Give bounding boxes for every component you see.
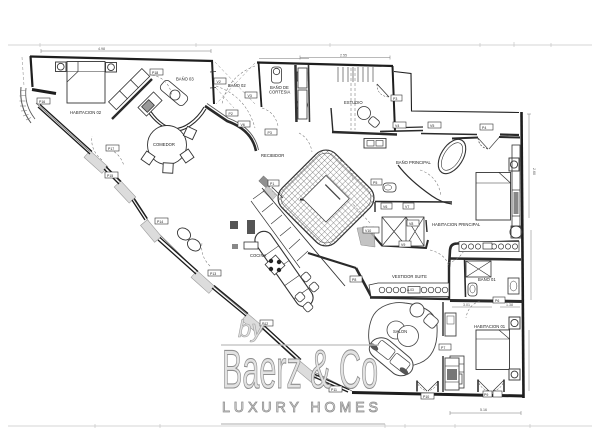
svg-text:5.16: 5.16 xyxy=(480,408,487,412)
svg-text:P9: P9 xyxy=(484,393,488,397)
svg-text:V6: V6 xyxy=(241,123,245,127)
svg-text:V6: V6 xyxy=(383,205,387,209)
svg-text:V9: V9 xyxy=(401,243,405,247)
svg-text:P4: P4 xyxy=(482,126,486,130)
svg-text:A-03: A-03 xyxy=(407,288,414,292)
svg-text:V8: V8 xyxy=(409,222,413,226)
svg-text:P7: P7 xyxy=(441,346,445,350)
svg-text:BAÑO PRINCIPAL: BAÑO PRINCIPAL xyxy=(396,160,431,165)
svg-text:P18: P18 xyxy=(152,71,158,75)
svg-text:COCINA: COCINA xyxy=(250,253,266,258)
svg-text:P3: P3 xyxy=(268,131,272,135)
svg-text:BAÑO 01: BAÑO 01 xyxy=(478,277,496,282)
svg-text:P15: P15 xyxy=(107,174,113,178)
svg-text:P5: P5 xyxy=(373,181,377,185)
svg-text:P8: P8 xyxy=(352,278,356,282)
svg-text:4.98: 4.98 xyxy=(98,47,105,51)
svg-text:VESTIDOR SUITE: VESTIDOR SUITE xyxy=(392,274,427,279)
svg-text:V2: V2 xyxy=(217,80,221,84)
svg-text:2.60: 2.60 xyxy=(532,168,536,175)
svg-text:COMEDOR: COMEDOR xyxy=(153,142,175,147)
svg-text:BAÑO 03: BAÑO 03 xyxy=(176,77,194,82)
svg-text:ESTUDIO: ESTUDIO xyxy=(344,100,363,105)
svg-text:RECIBIDOR: RECIBIDOR xyxy=(261,153,284,158)
svg-text:CORTESIA: CORTESIA xyxy=(269,90,291,95)
svg-text:HABITACION 02: HABITACION 02 xyxy=(70,110,102,115)
svg-text:HABITACION 01: HABITACION 01 xyxy=(474,324,506,329)
svg-text:V5: V5 xyxy=(430,124,434,128)
svg-text:P16: P16 xyxy=(39,100,45,104)
svg-text:1.38: 1.38 xyxy=(506,303,513,307)
svg-text:3.01: 3.01 xyxy=(463,303,470,307)
svg-text:P14: P14 xyxy=(157,220,163,224)
svg-text:P2: P2 xyxy=(229,112,233,116)
svg-text:P6: P6 xyxy=(495,299,499,303)
svg-text:BAÑO 02: BAÑO 02 xyxy=(228,83,246,88)
svg-text:V7: V7 xyxy=(405,205,409,209)
svg-text:P17: P17 xyxy=(108,147,114,151)
svg-text:LUXURY HOMES: LUXURY HOMES xyxy=(222,400,382,416)
svg-text:V10: V10 xyxy=(365,229,371,233)
svg-text:P3: P3 xyxy=(393,97,397,101)
svg-text:2.55: 2.55 xyxy=(340,54,347,58)
svg-text:V4: V4 xyxy=(395,124,399,128)
svg-text:SALON: SALON xyxy=(393,329,407,334)
svg-text:by: by xyxy=(238,316,265,343)
svg-text:P13: P13 xyxy=(210,272,216,276)
svg-text:Baerz & Co: Baerz & Co xyxy=(222,340,378,401)
svg-text:P1: P1 xyxy=(270,182,274,186)
svg-text:V3: V3 xyxy=(248,94,252,98)
svg-text:HABITACION PRINCIPAL: HABITACION PRINCIPAL xyxy=(432,222,481,227)
svg-text:P10: P10 xyxy=(423,395,429,399)
